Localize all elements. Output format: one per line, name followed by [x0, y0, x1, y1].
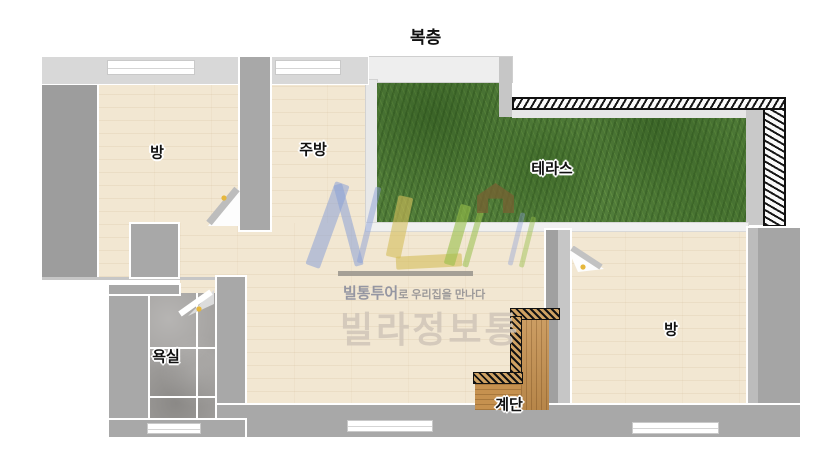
- terrace-northwest-wall: [366, 57, 512, 82]
- hallway-window: [348, 421, 432, 431]
- bathroom-window: [148, 424, 200, 433]
- window-mullion: [633, 428, 718, 429]
- kitchen-window: [276, 61, 340, 74]
- bathroom-west-wall: [109, 285, 148, 437]
- tile-grout-horizontal: [148, 396, 217, 398]
- window-mullion: [348, 426, 432, 427]
- terrace-north-railing: [512, 97, 786, 110]
- room-left-south-wall: [42, 277, 240, 280]
- stairs-upper-flight: [521, 315, 549, 410]
- terrace-east-wall: [746, 108, 763, 225]
- bathroom-north-wall: [109, 285, 179, 294]
- stairs-railing-side: [510, 316, 522, 380]
- entry-nook-wall: [131, 224, 178, 277]
- room-right-label: 방: [664, 319, 678, 340]
- kitchen-label: 주방: [299, 139, 327, 160]
- plan-title: 복층: [410, 23, 441, 48]
- room-left-door-icon: [203, 186, 240, 226]
- terrace-corner-column: [499, 57, 512, 117]
- floorplan-duplex: 복층: [0, 0, 840, 472]
- room-left-west-wall: [42, 70, 97, 280]
- window-mullion: [276, 68, 340, 69]
- window-mullion: [148, 429, 200, 430]
- stairs-railing-low: [473, 372, 523, 384]
- kitchen-west-wall: [240, 57, 270, 230]
- room-left-label: 방: [150, 142, 164, 163]
- stairs-label: 계단: [495, 394, 523, 415]
- terrace-north-wall-band: [512, 110, 746, 118]
- terrace-east-railing: [763, 110, 786, 227]
- bathroom-label: 욕실: [152, 346, 180, 367]
- terrace-label: 테라스: [531, 158, 572, 179]
- window-mullion: [108, 68, 194, 69]
- room-right-window: [633, 423, 718, 433]
- bathroom-door-icon: [176, 288, 215, 318]
- room-left-window: [108, 61, 194, 74]
- terrace-west-wall: [366, 80, 377, 225]
- room-right-door-icon: [570, 246, 604, 273]
